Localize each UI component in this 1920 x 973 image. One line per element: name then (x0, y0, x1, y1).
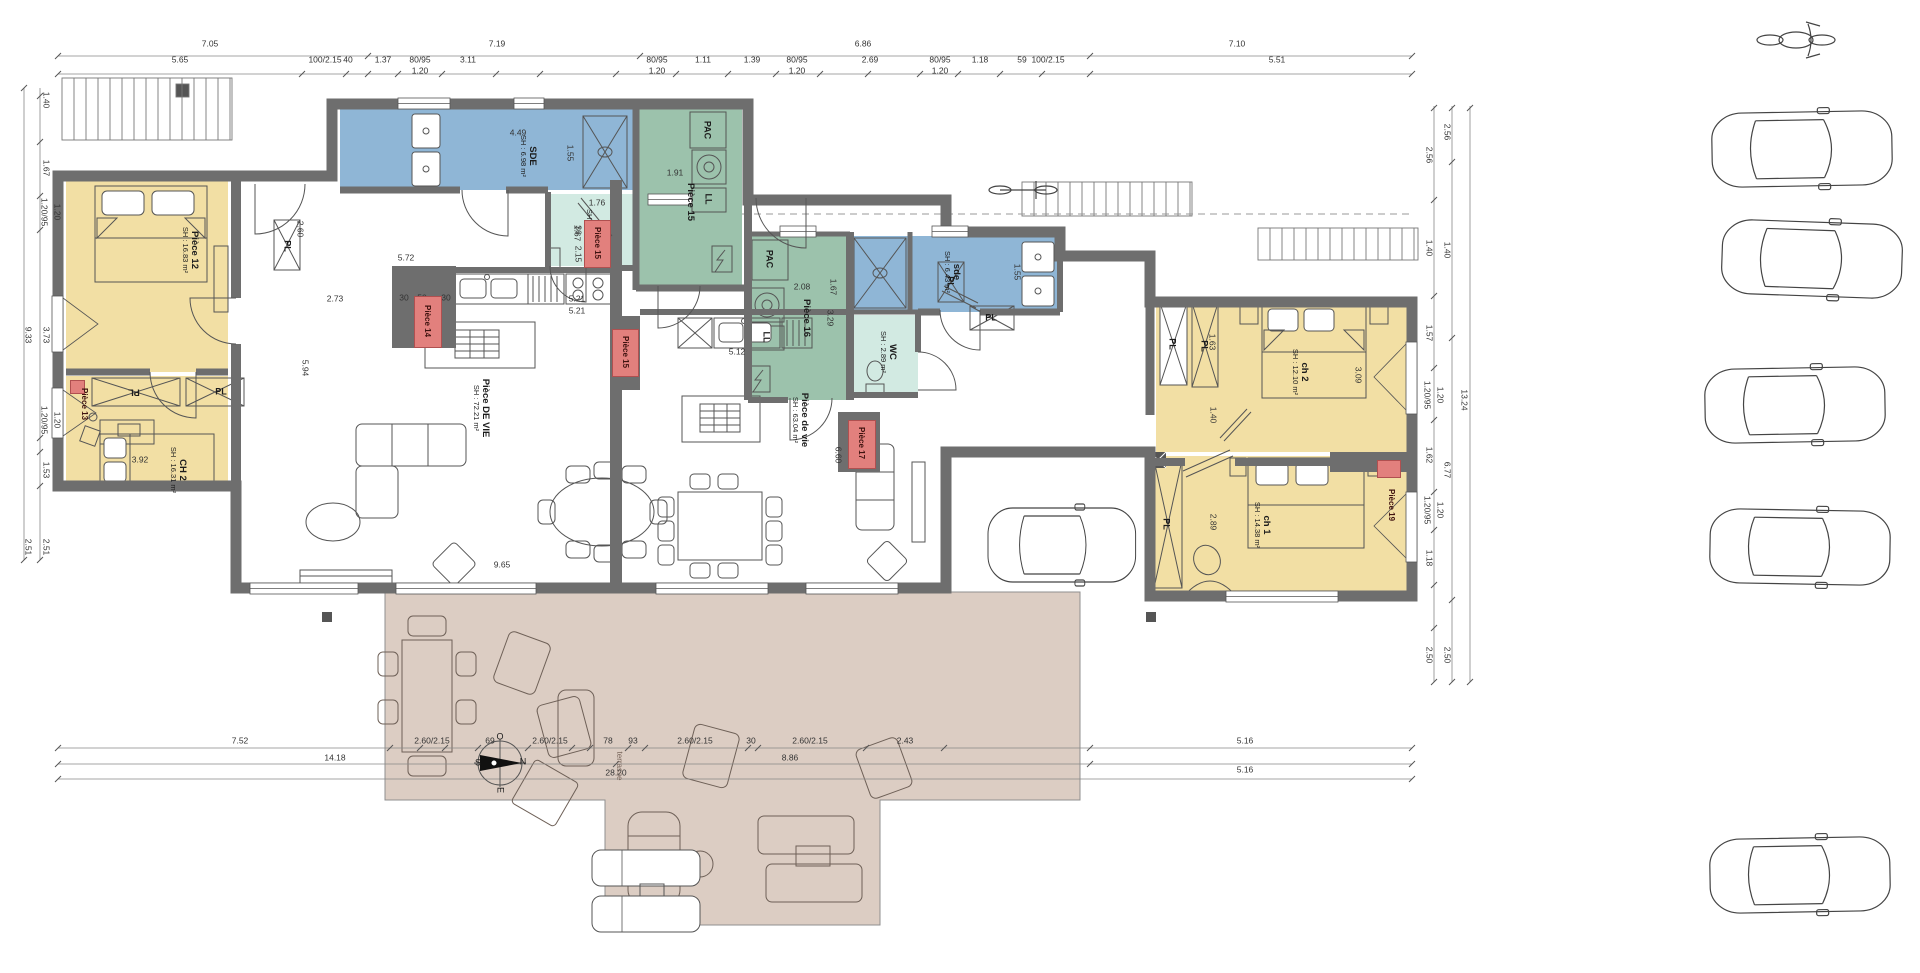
dimension-label: 80/95 (929, 56, 950, 65)
dimension-label: 3.11 (460, 56, 476, 65)
dimension-label: 5.12 (729, 348, 746, 357)
dimension-label: 80/95 (646, 56, 667, 65)
dimension-label: 1.20 (53, 204, 62, 221)
room-label: CH 2SH : 16.31 m² (169, 447, 187, 493)
room-label: SDESH : 6.98 m² (519, 135, 537, 177)
dimension-label: 100/2.15 (1031, 56, 1064, 65)
dimension-label: 69 (485, 737, 494, 746)
fixture-label: PL (1161, 518, 1170, 530)
dimension-label: 1.20 (649, 67, 666, 76)
room-tag-label: Pièce 13 (80, 388, 88, 420)
fixture-label: PL (1199, 340, 1208, 352)
dimension-label: 2.89 (1209, 514, 1218, 531)
dimension-label: 1.39 (744, 56, 761, 65)
dimension-label: 1.55 (1013, 264, 1022, 281)
dimension-label: 7.52 (232, 737, 249, 746)
dimension-label: 2.50 (1443, 647, 1452, 664)
room-tag-label: Pièce 17 (857, 427, 865, 459)
dimension-label: 3.92 (132, 456, 149, 465)
room-tag-box (1377, 460, 1401, 478)
dimension-label: 1.18 (1425, 550, 1434, 567)
dimension-label: 30 (399, 294, 408, 303)
dimension-label: 6.77 (1443, 462, 1452, 479)
dimension-label: 1.57 (1425, 325, 1434, 342)
dimension-label: 2.15 (574, 246, 583, 263)
dimension-label: 1.40 (1425, 240, 1434, 257)
dimension-label: 14.18 (324, 754, 345, 763)
terrace-label: terrasse (615, 752, 623, 781)
dimension-label: 1.20/95 (1423, 496, 1432, 524)
dimension-label: 78 (603, 737, 612, 746)
dimension-label: 1.40 (1443, 242, 1452, 259)
room-label: Pièce DE VIESH : 72.21 m² (472, 379, 490, 438)
dimension-label: 1.11 (695, 56, 711, 65)
dimension-label: 5.21 (569, 295, 586, 304)
dimension-label: 2.56 (1443, 124, 1452, 141)
dimension-label: 1.20 (1436, 387, 1445, 404)
dimension-label: 30 (441, 294, 450, 303)
dimension-label: 9.33 (24, 327, 33, 344)
room-label: Pièce 15 (685, 183, 695, 221)
dimension-label: 80/95 (409, 56, 430, 65)
dimension-label: 2.73 (327, 295, 344, 304)
room-label: Pièce de vieSH : 63.04 m² (791, 393, 809, 447)
dimension-label: 2.51 (24, 539, 33, 556)
fixture-label: PL (282, 240, 291, 252)
dimension-label: 1.20/95 (40, 198, 49, 226)
fixture-label: LL (761, 332, 770, 343)
dimension-label: 5.16 (1237, 737, 1254, 746)
dimension-label: 1.91 (667, 169, 684, 178)
floor-plan-canvas: 7.057.196.867.105.65100/2.15401.3780/951… (0, 0, 1920, 973)
dimension-label: 7.05 (202, 40, 219, 49)
room-label: Pièce 12SH : 16.83 m² (181, 227, 199, 273)
dimension-label: 1.20 (932, 67, 949, 76)
dimension-label: 3.73 (42, 327, 51, 344)
dimension-label: 5.51 (1269, 56, 1286, 65)
dimension-label: 100/2.15 (308, 56, 341, 65)
dimension-label: 1.76 (589, 199, 606, 208)
fixture-label: PL (985, 313, 997, 322)
dimension-label: 30 (746, 737, 755, 746)
room-tag-label: Pièce 14 (423, 305, 431, 337)
dimension-label: 5.21 (569, 307, 586, 316)
dimension-label: 1.40 (42, 92, 51, 109)
compass-letter: O (496, 732, 503, 741)
dimension-label: 2.56 (1425, 147, 1434, 164)
dimension-label: 1.62 (1425, 447, 1434, 464)
dimension-label: 1.20 (789, 67, 806, 76)
dimension-label: 93 (628, 737, 637, 746)
dimension-label: 1.18 (972, 56, 989, 65)
dimension-label: 2.60/2.15 (792, 737, 827, 746)
dimension-label: 2.60/2.15 (677, 737, 712, 746)
room-tag-label: Pièce 15 (593, 227, 601, 259)
dimension-label: 7.10 (1229, 40, 1246, 49)
fixture-label: PAC (764, 250, 773, 268)
dimension-label: 3.09 (1354, 367, 1363, 384)
dimension-label: 1.67 (829, 279, 838, 296)
dimension-label: 2.60/2.15 (414, 737, 449, 746)
dimension-label: 13.24 (1460, 389, 1469, 410)
dimension-label: 1.40 (1209, 407, 1218, 424)
plan-labels: 7.057.196.867.105.65100/2.15401.3780/951… (0, 0, 1920, 973)
dimension-label: 6.86 (855, 40, 872, 49)
dimension-label: 2.51 (42, 539, 51, 556)
fixture-label: PL (945, 276, 954, 288)
dimension-label: 1.55 (566, 145, 575, 162)
dimension-label: 2.69 (862, 56, 879, 65)
dimension-label: 80/95 (786, 56, 807, 65)
dimension-label: 2.08 (794, 283, 811, 292)
fixture-label: PL (128, 387, 140, 396)
compass-letter: S (475, 758, 481, 767)
dimension-label: 3.29 (826, 310, 835, 327)
dimension-label: 6.60 (834, 447, 843, 464)
fixture-label: PAC (702, 121, 711, 139)
dimension-label: 36 (574, 225, 583, 234)
dimension-label: 1.37 (375, 56, 392, 65)
dimension-label: 2.60/2.15 (532, 737, 567, 746)
dimension-label: 2.50 (1425, 647, 1434, 664)
dimension-label: 7.19 (489, 40, 506, 49)
compass-letter: E (495, 787, 504, 793)
room-label: ch 2SH : 12.10 m² (1291, 349, 1309, 395)
room-tag-label: Pièce 15 (621, 336, 629, 368)
room-label: ch 1SH : 14.38 m² (1253, 502, 1271, 548)
room-label: Pièce 16 (801, 299, 811, 337)
room-label: WCSH : 2.89 m² (879, 331, 897, 373)
dimension-label: 1.20 (412, 67, 429, 76)
dimension-label: 5.72 (398, 254, 415, 263)
fixture-label: LL (703, 194, 712, 205)
dimension-label: 1.20/95 (40, 406, 49, 434)
dimension-label: 9.65 (494, 561, 511, 570)
dimension-label: 2.43 (897, 737, 914, 746)
dimension-label: 1.20 (1436, 502, 1445, 519)
dimension-label: 1.67 (42, 160, 51, 177)
dimension-label: 1.20/95 (1423, 381, 1432, 409)
fixture-label: PL (1167, 338, 1176, 350)
dimension-label: 5.65 (172, 56, 189, 65)
compass-letter: N (520, 757, 527, 766)
dimension-label: 8.86 (782, 754, 799, 763)
dimension-label: 1.20 (53, 412, 62, 429)
dimension-label: 1.53 (42, 462, 51, 479)
dimension-label: 59 (1017, 56, 1026, 65)
dimension-label: 5.94 (301, 360, 310, 377)
dimension-label: 5.16 (1237, 766, 1254, 775)
room-tag-label: Pièce 19 (1387, 489, 1395, 521)
fixture-label: PL (215, 387, 227, 396)
dimension-label: 2.60 (296, 221, 305, 238)
dimension-label: 40 (343, 56, 352, 65)
